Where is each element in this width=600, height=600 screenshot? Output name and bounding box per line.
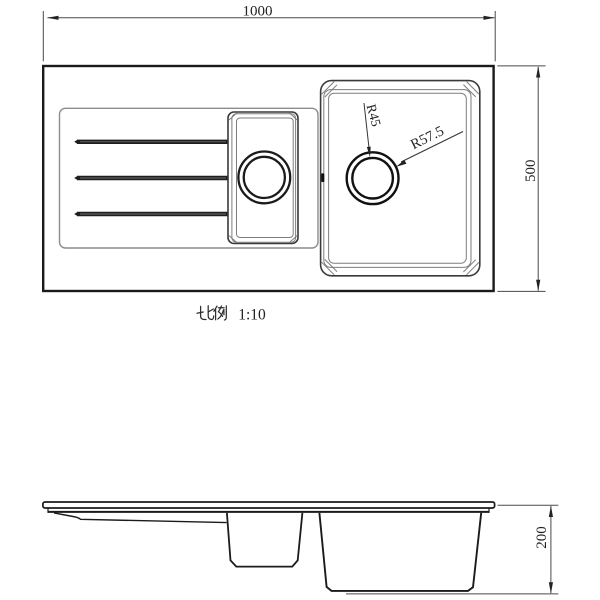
svg-text:200: 200 bbox=[534, 526, 550, 549]
svg-text:500: 500 bbox=[523, 160, 539, 183]
svg-text:1:10: 1:10 bbox=[238, 307, 266, 324]
svg-text:1000: 1000 bbox=[243, 4, 273, 20]
